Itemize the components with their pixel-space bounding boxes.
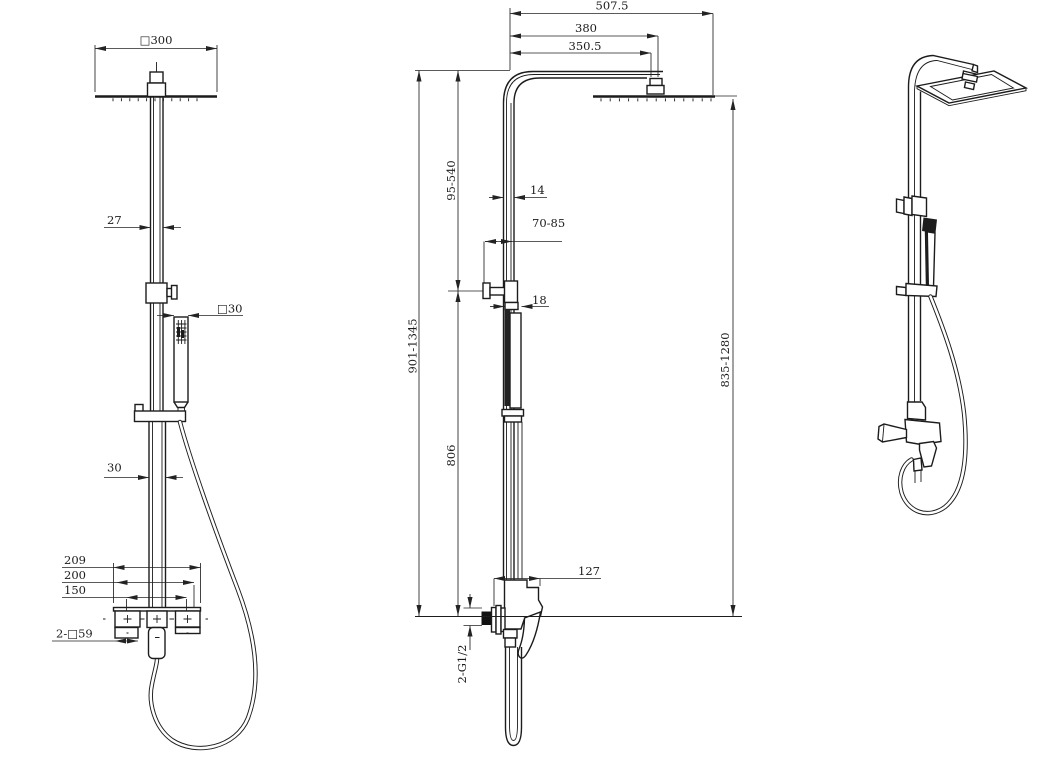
dim-overall-reach-label: 507.5 xyxy=(596,0,629,13)
dim-valve-reach-label: 127 xyxy=(578,564,600,578)
side-dim-inlets: 2-G1/2 xyxy=(455,594,482,683)
side-head-plate xyxy=(593,97,715,102)
iso-head-plate xyxy=(917,71,1026,106)
dim-valve-body-label: 200 xyxy=(64,568,86,582)
front-head-plate xyxy=(95,62,217,101)
isometric-view xyxy=(878,56,1026,514)
front-riser-pipe xyxy=(149,97,166,607)
dim-riser-adjust-label: 95-540 xyxy=(444,160,458,200)
front-dim-lower-pipe: 30 xyxy=(104,461,183,478)
drawing-canvas: □300 27 xyxy=(0,0,1037,763)
dim-arm-inner-reach-label: 350.5 xyxy=(569,39,602,53)
side-hose-upper xyxy=(518,422,522,579)
dim-upper-pipe-label: 27 xyxy=(107,213,122,227)
iso-slider-bracket xyxy=(897,196,927,217)
dim-arm-reach-label: 380 xyxy=(575,21,597,35)
side-hose-lower xyxy=(504,630,522,746)
front-view: □300 27 xyxy=(52,33,255,748)
iso-mixer-valve xyxy=(878,402,941,483)
front-shower-hose xyxy=(151,422,256,748)
dim-inlet-centers-label: 150 xyxy=(64,583,86,597)
side-shower-arm xyxy=(504,72,665,104)
dim-riser-height-label: 806 xyxy=(444,445,458,467)
front-dim-hand-shower: □30 xyxy=(157,302,243,316)
shower-technical-drawing: □300 27 xyxy=(0,0,1037,763)
dim-valve-overall-label: 209 xyxy=(64,553,86,567)
side-top-dimensions: 507.5 380 350.5 xyxy=(510,0,713,95)
side-view: 507.5 380 350.5 901-1345 95-540 806 xyxy=(406,0,743,746)
iso-hand-shower xyxy=(897,218,938,297)
side-wall-bracket: 70-85 xyxy=(483,216,565,303)
front-dim-upper-pipe: 27 xyxy=(104,213,181,228)
dim-head-width-label: □300 xyxy=(140,33,173,47)
dim-lower-pipe-label: 30 xyxy=(107,461,122,475)
dim-pipe-section-label: 14 xyxy=(530,183,545,197)
side-left-dimensions: 901-1345 95-540 806 xyxy=(406,71,511,617)
side-hand-shower xyxy=(502,303,524,423)
dim-head-height-label: 835-1280 xyxy=(718,332,732,387)
side-dim-pipe-section: 14 xyxy=(489,183,547,198)
dim-overall-height-label: 901-1345 xyxy=(406,318,420,373)
dim-escutcheons-label: 2-□59 xyxy=(56,627,93,641)
dim-hand-shower-label: □30 xyxy=(217,302,243,316)
front-mixer-valve xyxy=(103,608,208,659)
dim-inlets-label: 2-G1/2 xyxy=(455,645,469,684)
dim-hand-shower-section-label: 18 xyxy=(532,293,547,307)
front-hand-shower xyxy=(174,317,188,412)
iso-pole xyxy=(909,56,978,404)
dim-bracket-adjust-label: 70-85 xyxy=(532,216,565,230)
front-slider-bracket xyxy=(146,283,177,303)
side-right-dimension: 835-1280 xyxy=(715,96,737,616)
